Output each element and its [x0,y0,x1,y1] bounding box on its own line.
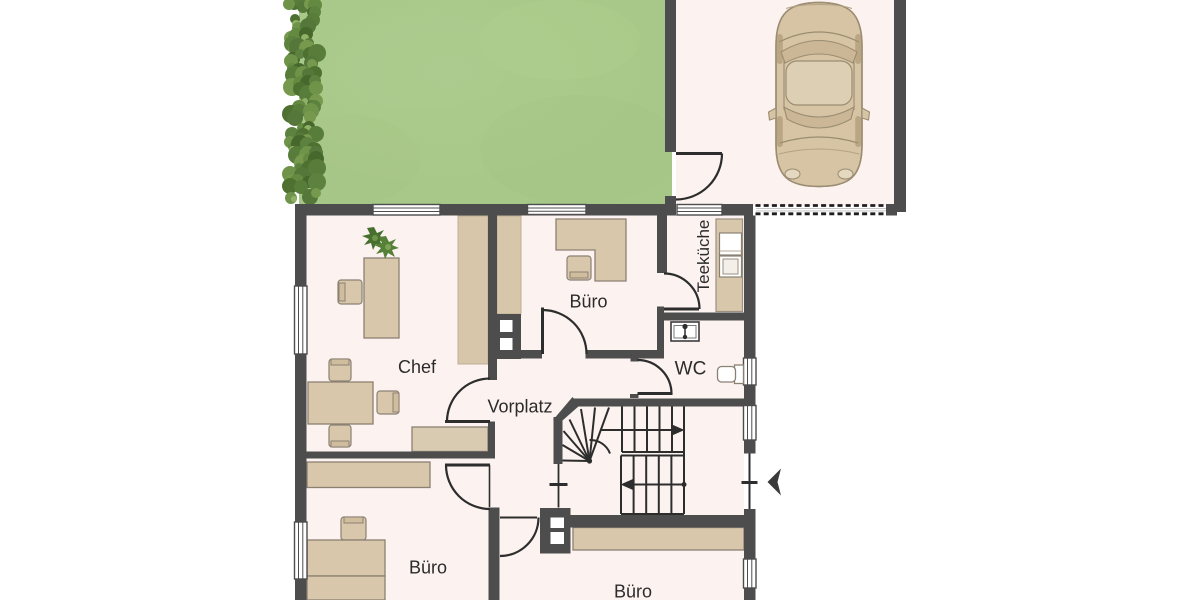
svg-text:Teeküche: Teeküche [694,220,713,293]
svg-text:Büro: Büro [614,582,652,600]
svg-text:WC: WC [675,359,707,380]
svg-text:Büro: Büro [409,558,447,578]
svg-text:Vorplatz: Vorplatz [487,397,552,417]
svg-text:Büro: Büro [569,292,607,312]
svg-text:Chef: Chef [398,357,437,377]
